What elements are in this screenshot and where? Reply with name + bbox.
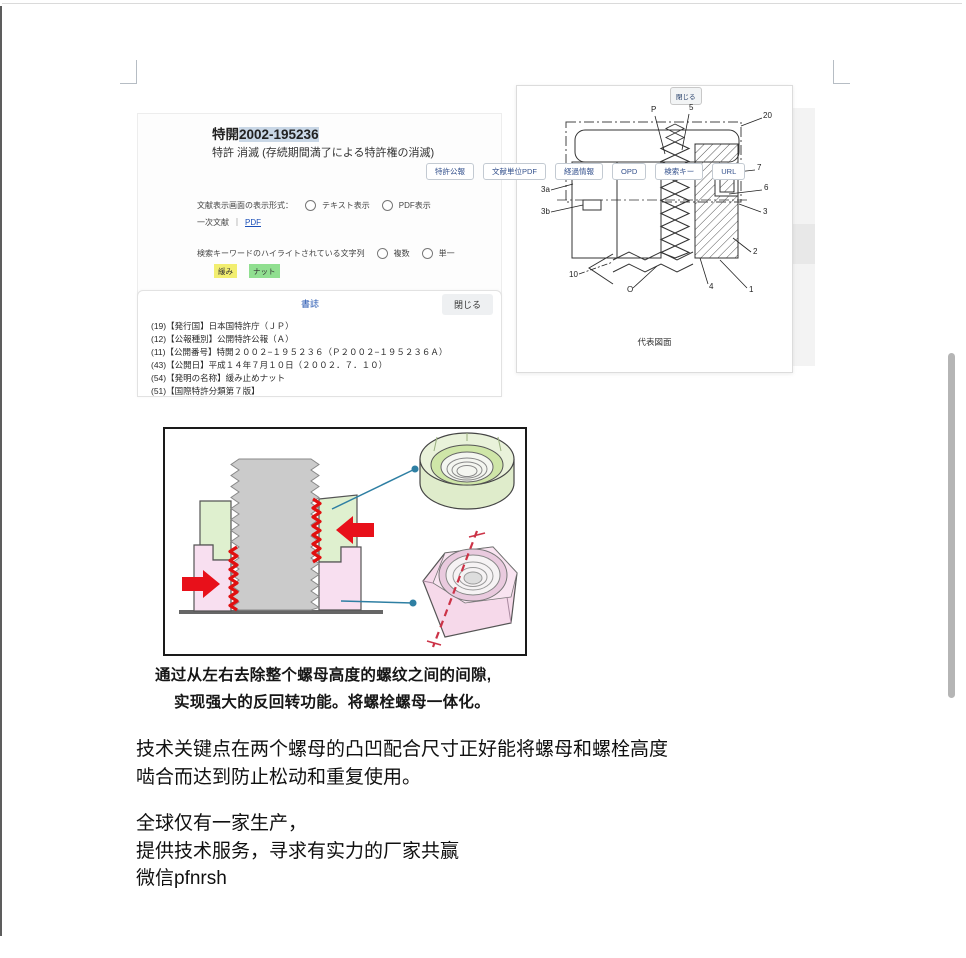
display-format-row: 文献表示画面の表示形式： テキスト表示 PDF表示	[197, 200, 431, 211]
document-toolbar: 特許公報文献単位PDF経過情報OPD検索キーURL	[426, 163, 745, 180]
text-boundary-corner-mark-left	[120, 60, 137, 84]
biblio-lines: (19)【発行国】日本国特許庁（ＪＰ）(12)【公報種別】公開特許公報（Ａ）(1…	[151, 320, 447, 398]
toolbar-button[interactable]: 文献単位PDF	[483, 163, 546, 180]
biblio-line: (43)【公開日】平成１４年７月１０日（２００２．７．１０）	[151, 359, 447, 372]
drawing-ref-label: 7	[757, 163, 762, 172]
biblio-line: (11)【公開番号】特開２００２−１９５２３６（Ｐ２００２−１９５２３６Ａ）	[151, 346, 447, 359]
radio-text-display-label: テキスト表示	[322, 200, 370, 211]
radio-pdf-display-label: PDF表示	[399, 200, 431, 211]
biblio-tab-link[interactable]: 書誌	[301, 297, 319, 310]
biblio-line: (12)【公報種別】公開特許公報（Ａ）	[151, 333, 447, 346]
page-left-border	[0, 6, 2, 936]
page: 特開2002-195236 特許 消滅 (存続期間満了による特許権の消滅) 文献…	[0, 0, 966, 958]
drawing-ref-label: 3b	[541, 207, 550, 216]
tech-key-line-1: 技术关键点在两个螺母的凸凹配合尺寸正好能将螺母和螺栓高度	[136, 736, 668, 764]
primary-doc-label: 一次文献	[197, 217, 229, 228]
drawing-ref-label: 20	[763, 111, 772, 120]
radio-highlight-single-label: 単一	[439, 248, 455, 259]
vertical-scrollbar-thumb[interactable]	[948, 353, 955, 698]
highlight-label: 検索キーワードのハイライトされている文字列	[197, 248, 365, 259]
keyword-chip-yellow: 緩み	[214, 264, 237, 278]
drawing-caption: 代表図面	[517, 336, 792, 348]
radio-highlight-multi[interactable]	[377, 248, 388, 259]
radio-highlight-single[interactable]	[422, 248, 433, 259]
green-nut-3d	[420, 433, 514, 509]
highlight-row: 検索キーワードのハイライトされている文字列 複数 単一	[197, 248, 455, 259]
document-status-line: 特許 消滅 (存続期間満了による特許権の消滅)	[212, 144, 434, 160]
drawing-ref-label: 1	[749, 285, 754, 294]
drawing-ref-label: 10	[569, 270, 578, 279]
drawing-ref-label: 4	[709, 282, 714, 291]
tech-key-paragraph: 技术关键点在两个螺母的凸凹配合尺寸正好能将螺母和螺栓高度 啮合而达到防止松动和重…	[136, 736, 668, 791]
tech-key-line-2: 啮合而达到防止松动和重复使用。	[136, 764, 668, 792]
drawing-ref-label: 6	[764, 183, 769, 192]
drawing-ref-label: P	[651, 105, 656, 114]
biblio-card: 書誌 閉じる (19)【発行国】日本国特許庁（ＪＰ）(12)【公報種別】公開特許…	[137, 290, 502, 397]
contact-line-3: 微信pfnrsh	[136, 865, 459, 893]
radio-text-display[interactable]	[305, 200, 316, 211]
radio-highlight-multi-label: 複数	[394, 248, 410, 259]
drawing-ref-label: 3a	[541, 185, 550, 194]
radio-pdf-display[interactable]	[382, 200, 393, 211]
toolbar-button[interactable]: 検索キー	[655, 163, 703, 180]
nut-illustration-frame	[163, 427, 527, 656]
primary-doc-pdf-link[interactable]: PDF	[245, 218, 261, 227]
drawing-ref-label: 2	[753, 247, 758, 256]
pink-nut-3d	[423, 531, 517, 647]
primary-doc-row: 一次文献 ｜ PDF	[197, 217, 261, 228]
contact-paragraph: 全球仅有一家生产， 提供技术服务，寻求有实力的厂家共赢 微信pfnrsh	[136, 810, 459, 893]
background-fragment-dark	[791, 224, 815, 264]
caption-line-2: 实现强大的反回转功能。将螺栓螺母一体化。	[174, 690, 490, 712]
display-format-label: 文献表示画面の表示形式：	[197, 200, 293, 211]
toolbar-button[interactable]: 特許公報	[426, 163, 474, 180]
document-title: 特開2002-195236	[212, 123, 319, 143]
drawing-ref-label: 3	[763, 207, 768, 216]
biblio-close-button[interactable]: 閉じる	[442, 294, 493, 315]
keyword-chip-green: ナット	[249, 264, 280, 278]
representative-drawing-panel: 閉じる	[516, 85, 793, 373]
text-boundary-corner-mark-right	[833, 60, 850, 84]
biblio-line: (54)【発明の名称】緩み止めナット	[151, 372, 447, 385]
contact-line-1: 全球仅有一家生产，	[136, 810, 459, 838]
primary-doc-separator: ｜	[233, 217, 241, 228]
biblio-line: (51)【国際特許分類第７版】	[151, 385, 447, 398]
toolbar-button[interactable]: OPD	[612, 163, 646, 180]
page-top-border	[2, 3, 962, 4]
toolbar-button[interactable]: URL	[712, 163, 745, 180]
document-number-highlighted: 2002-195236	[239, 127, 319, 142]
nut-illustration	[165, 429, 525, 654]
drawing-ref-label: 5	[689, 103, 694, 112]
patent-drawing: P520763214O103a3b	[517, 102, 792, 347]
contact-line-2: 提供技术服务，寻求有实力的厂家共赢	[136, 838, 459, 866]
document-title-prefix: 特開	[212, 127, 239, 142]
drawing-ref-label: O	[627, 285, 633, 294]
toolbar-button[interactable]: 経過情報	[555, 163, 603, 180]
highlight-chips-row: 緩み ナット	[214, 264, 288, 278]
caption-line-1: 通过从左右去除整个螺母高度的螺纹之间的间隙,	[155, 663, 491, 685]
biblio-line: (19)【発行国】日本国特許庁（ＪＰ）	[151, 320, 447, 333]
